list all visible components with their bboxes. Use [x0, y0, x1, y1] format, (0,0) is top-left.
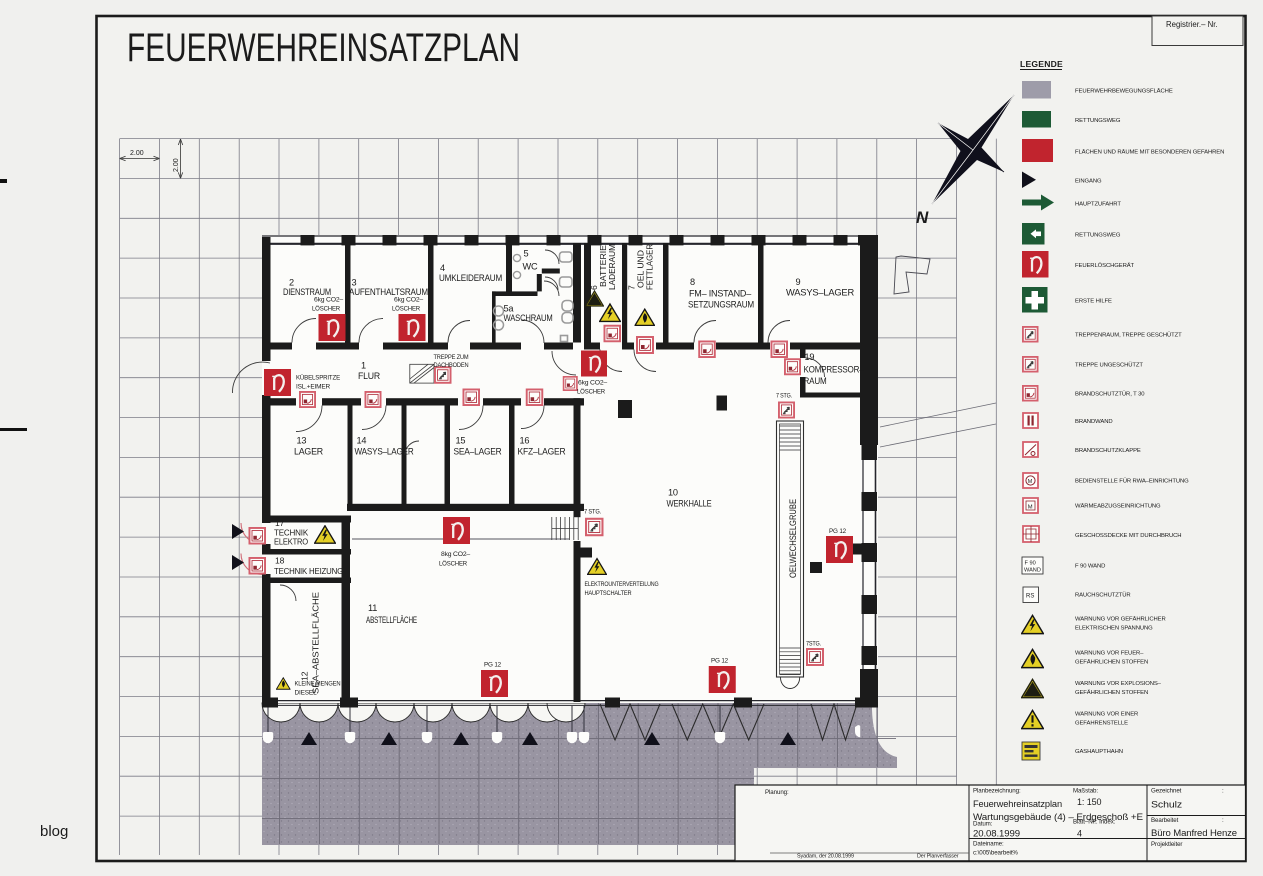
svg-text:BRANDWAND: BRANDWAND [1075, 419, 1113, 425]
svg-text:TREPPE ZUM: TREPPE ZUM [434, 354, 469, 361]
svg-text:FETTLAGER: FETTLAGER [645, 244, 655, 290]
svg-text:PG 12: PG 12 [711, 658, 728, 665]
svg-text:KÜBELSPRITZE: KÜBELSPRITZE [296, 374, 341, 382]
svg-text:2.00: 2.00 [130, 150, 144, 157]
svg-text:KLEINE MENGEN: KLEINE MENGEN [295, 681, 341, 688]
svg-text:LÖSCHER: LÖSCHER [392, 305, 420, 313]
svg-text:OELWECHSELGRUBE: OELWECHSELGRUBE [788, 499, 798, 578]
svg-text:GEFÄHRLICHEN STOFFEN: GEFÄHRLICHEN STOFFEN [1075, 659, 1148, 666]
svg-text:5: 5 [524, 249, 529, 259]
svg-text:Feuerwehreinsatzplan: Feuerwehreinsatzplan [973, 799, 1062, 809]
svg-text:ERSTE HILFE: ERSTE HILFE [1075, 299, 1112, 305]
svg-text:WARNUNG VOR EXPLOSIONS–: WARNUNG VOR EXPLOSIONS– [1075, 681, 1162, 687]
svg-text:TREPPE UNGESCHÜTZT: TREPPE UNGESCHÜTZT [1075, 362, 1143, 369]
svg-text:Registrier.– Nr.: Registrier.– Nr. [1166, 20, 1218, 29]
svg-text:Schulz: Schulz [1151, 800, 1183, 810]
svg-text:14: 14 [357, 436, 367, 446]
svg-text:6kg CO2–: 6kg CO2– [314, 297, 343, 304]
svg-text:FEUERWEHRBEWEGUNGSFLÄCHE: FEUERWEHRBEWEGUNGSFLÄCHE [1075, 88, 1173, 95]
svg-text:HAUPTSCHALTER: HAUPTSCHALTER [585, 590, 632, 597]
svg-text:3: 3 [352, 278, 357, 288]
svg-text:c:\005\bearbeit%: c:\005\bearbeit% [973, 850, 1018, 857]
svg-text:SEA–LAGER: SEA–LAGER [454, 447, 503, 457]
svg-text:17: 17 [275, 518, 285, 528]
svg-text:Der Planverfasser: Der Planverfasser [917, 854, 959, 860]
svg-text:9: 9 [796, 277, 801, 287]
svg-text:DACHBODEN: DACHBODEN [434, 362, 469, 369]
svg-text:WAND: WAND [1024, 568, 1041, 574]
svg-text:ELEKTROUNTERVERTEILUNG: ELEKTROUNTERVERTEILUNG [585, 581, 659, 588]
svg-text:1: 150: 1: 150 [1077, 797, 1102, 807]
svg-text:Syadam, der 20.08.1999: Syadam, der 20.08.1999 [797, 854, 854, 860]
svg-text:TREPPENRAUM, TREPPE GESCHÜTZ: TREPPENRAUM, TREPPE GESCHÜTZT [1075, 332, 1182, 339]
svg-text:10: 10 [668, 488, 678, 498]
svg-text:20.08.1999: 20.08.1999 [973, 829, 1020, 839]
svg-text:RETTUNGSWEG: RETTUNGSWEG [1075, 118, 1121, 124]
svg-text:Gezeichnet: Gezeichnet [1151, 788, 1182, 795]
svg-text:ELEKTRO: ELEKTRO [274, 537, 308, 547]
svg-text:LÖSCHER: LÖSCHER [312, 305, 340, 313]
svg-text:GESCHOSSDECKE MIT DURCHBRUCH: GESCHOSSDECKE MIT DURCHBRUCH [1075, 533, 1181, 539]
svg-text:SETZUNGSRAUM: SETZUNGSRAUM [688, 300, 754, 310]
svg-text:SEA–ABSTELLFLÄCHE: SEA–ABSTELLFLÄCHE [311, 592, 321, 694]
svg-text:WERKHALLE: WERKHALLE [667, 499, 712, 509]
svg-text:F 90: F 90 [1025, 561, 1036, 567]
svg-text:ELEKTRISCHEN SPANNUNG: ELEKTRISCHEN SPANNUNG [1075, 626, 1153, 632]
svg-text:N: N [916, 208, 929, 227]
svg-text:PG 12: PG 12 [484, 662, 501, 669]
svg-text:6kg CO2–: 6kg CO2– [578, 380, 607, 387]
svg-text:FLÄCHEN UND RÄUME MIT BESO: FLÄCHEN UND RÄUME MIT BESONDEREN GEFAHRE… [1075, 149, 1224, 156]
svg-text:8kg CO2–: 8kg CO2– [441, 551, 470, 558]
svg-text:WC: WC [523, 262, 538, 272]
svg-text:F 90 WAND: F 90 WAND [1075, 564, 1105, 570]
svg-text:TECHNIK HEIZUNG: TECHNIK HEIZUNG [274, 566, 343, 576]
svg-text:7 STG.: 7 STG. [776, 393, 792, 400]
svg-text:HAUPTZUFAHRT: HAUPTZUFAHRT [1075, 202, 1121, 208]
svg-text:2.00: 2.00 [173, 158, 180, 172]
svg-text:ISL.+EIMER: ISL.+EIMER [296, 384, 330, 391]
svg-text:FLUR: FLUR [358, 371, 381, 381]
svg-text:BEDIENSTELLE FÜR RWA–EINRICH: BEDIENSTELLE FÜR RWA–EINRICHTUNG [1075, 478, 1189, 485]
svg-text:19: 19 [805, 352, 815, 362]
svg-text:FM– INSTAND–: FM– INSTAND– [689, 289, 752, 299]
svg-text:EINGANG: EINGANG [1075, 179, 1102, 185]
svg-text:UMKLEIDERAUM: UMKLEIDERAUM [439, 273, 502, 283]
svg-text:11: 11 [368, 603, 377, 613]
svg-text:LEGENDE: LEGENDE [1020, 59, 1063, 69]
svg-text:DIESEL: DIESEL [295, 690, 317, 697]
svg-text:Dateiname:: Dateiname: [973, 841, 1004, 848]
svg-text:KOMPRESSOR–: KOMPRESSOR– [804, 365, 865, 375]
svg-text:BRANDSCHUTZKLAPPE: BRANDSCHUTZKLAPPE [1075, 448, 1141, 454]
svg-text:6kg CO2–: 6kg CO2– [394, 297, 423, 304]
svg-text:AUFENTHALTSRAUM: AUFENTHALTSRAUM [349, 287, 428, 297]
svg-text:M: M [1028, 505, 1033, 511]
svg-text:RETTUNGSWEG: RETTUNGSWEG [1075, 233, 1121, 239]
svg-text:FEUERWEHREINSATZPLAN: FEUERWEHREINSATZPLAN [127, 26, 520, 70]
svg-text:WASYS–LAGER: WASYS–LAGER [355, 447, 414, 457]
svg-text:FEUERLÖSCHGERÄT: FEUERLÖSCHGERÄT [1075, 262, 1135, 269]
svg-text:DIENSTRAUM: DIENSTRAUM [283, 287, 331, 297]
svg-text:Planung:: Planung: [765, 789, 789, 796]
svg-text:RAUM: RAUM [804, 376, 827, 386]
svg-text:ABSTELLFLÄCHE: ABSTELLFLÄCHE [366, 615, 417, 625]
svg-text:4: 4 [1077, 829, 1082, 839]
svg-text:15: 15 [456, 436, 466, 446]
svg-text:5a: 5a [504, 304, 515, 314]
svg-text:Maßstab:: Maßstab: [1073, 788, 1098, 795]
svg-text:WARNUNG VOR EINER: WARNUNG VOR EINER [1075, 712, 1138, 718]
svg-text:LÖSCHER: LÖSCHER [439, 560, 467, 568]
svg-text:WASCHRAUM: WASCHRAUM [504, 313, 553, 323]
svg-text:LÖSCHER: LÖSCHER [577, 388, 605, 396]
svg-text:WÄRMEABZUGSEINRICHTUNG: WÄRMEABZUGSEINRICHTUNG [1075, 503, 1161, 510]
svg-text:Büro Manfred Henze: Büro Manfred Henze [1151, 828, 1237, 838]
svg-text:7 STG.: 7 STG. [584, 509, 601, 516]
svg-text:PG 12: PG 12 [829, 528, 846, 535]
svg-text:M: M [1028, 479, 1033, 485]
svg-text:16: 16 [520, 436, 530, 446]
svg-text:blog: blog [40, 823, 68, 840]
svg-text:WASYS–LAGER: WASYS–LAGER [786, 288, 855, 298]
svg-text:Bearbeitet: Bearbeitet [1151, 817, 1179, 824]
svg-text:LADERAUM: LADERAUM [607, 244, 617, 290]
svg-text:WARNUNG VOR GEFÄHRLICHER: WARNUNG VOR GEFÄHRLICHER [1075, 616, 1166, 623]
svg-text:BRANDSCHUTZTÜR, T 30: BRANDSCHUTZTÜR, T 30 [1075, 391, 1145, 398]
svg-text:WARNUNG VOR FEUER–: WARNUNG VOR FEUER– [1075, 651, 1144, 657]
svg-text:13: 13 [297, 436, 307, 446]
svg-text:18: 18 [275, 556, 285, 566]
svg-text:GEFÄHRLICHEN STOFFEN: GEFÄHRLICHEN STOFFEN [1075, 689, 1148, 696]
svg-text:8: 8 [690, 277, 695, 287]
svg-text:GASHAUPTHAHN: GASHAUPTHAHN [1075, 749, 1123, 755]
svg-text:2: 2 [289, 278, 294, 288]
svg-text:RS: RS [1026, 594, 1034, 600]
svg-text:GEFAHRENSTELLE: GEFAHRENSTELLE [1075, 721, 1128, 727]
svg-text:LAGER: LAGER [294, 447, 324, 457]
svg-text:RAUCHSCHUTZTÜR: RAUCHSCHUTZTÜR [1075, 592, 1131, 599]
svg-text:Wartungsgebäude (4) – Erdgesch: Wartungsgebäude (4) – Erdgeschoß +E [973, 812, 1143, 822]
svg-text:Planbezeichnung:: Planbezeichnung: [973, 788, 1021, 795]
svg-text:7STG.: 7STG. [806, 641, 821, 648]
svg-text:4: 4 [440, 263, 445, 273]
svg-text:1: 1 [361, 361, 366, 371]
svg-text:KFZ–LAGER: KFZ–LAGER [518, 447, 567, 457]
svg-text:Projektleiter: Projektleiter [1151, 841, 1182, 848]
